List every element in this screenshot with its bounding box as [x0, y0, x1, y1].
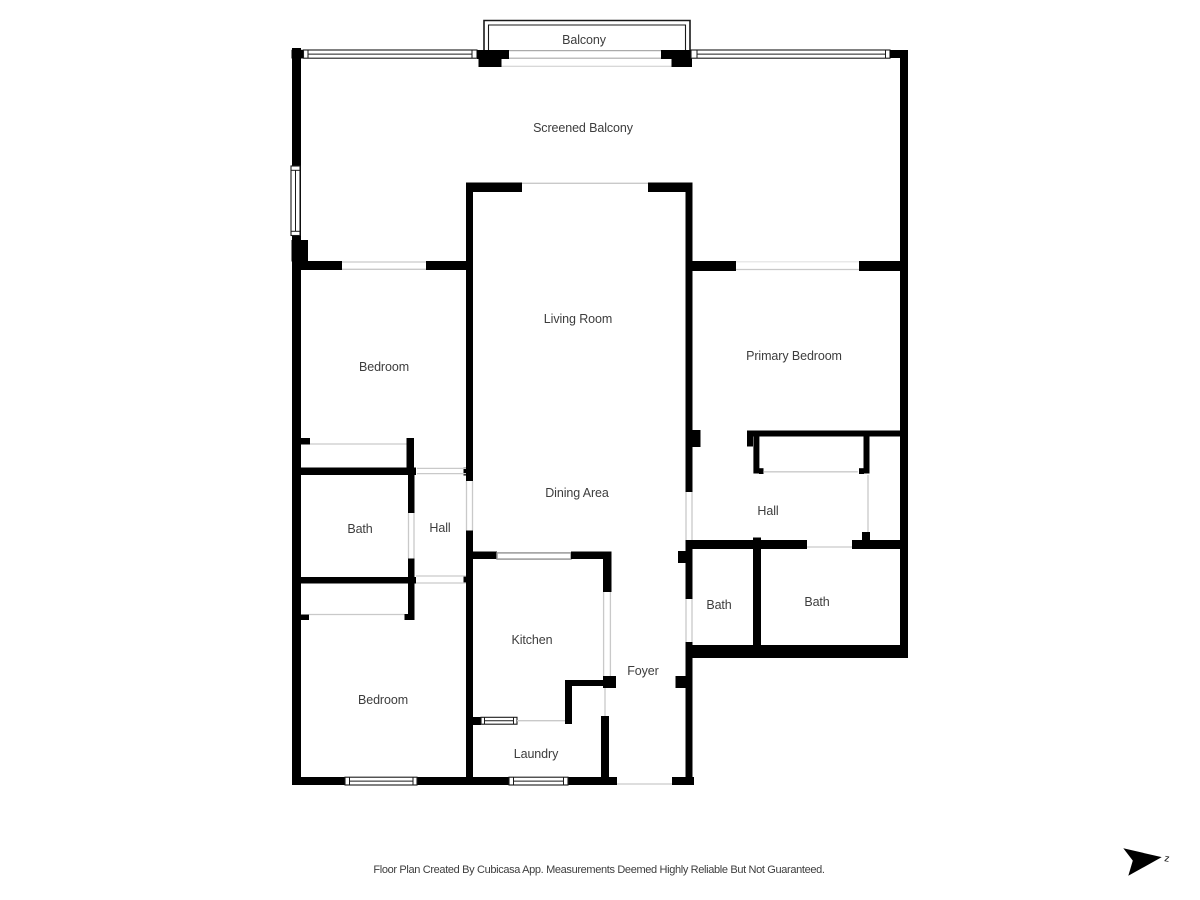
- svg-text:Laundry: Laundry: [514, 747, 559, 761]
- svg-text:Foyer: Foyer: [627, 664, 658, 678]
- svg-text:Floor Plan Created By Cubicasa: Floor Plan Created By Cubicasa App. Meas…: [373, 864, 824, 876]
- svg-text:z: z: [1163, 853, 1170, 865]
- svg-text:Hall: Hall: [757, 504, 778, 518]
- svg-text:Dining Area: Dining Area: [545, 486, 609, 500]
- svg-text:Primary Bedroom: Primary Bedroom: [746, 349, 842, 363]
- svg-text:Living Room: Living Room: [544, 312, 612, 326]
- svg-text:Bath: Bath: [706, 598, 731, 612]
- svg-text:Balcony: Balcony: [562, 33, 607, 47]
- svg-text:Bedroom: Bedroom: [359, 360, 409, 374]
- svg-text:Hall: Hall: [429, 521, 450, 535]
- svg-text:Bath: Bath: [804, 595, 829, 609]
- svg-text:Bedroom: Bedroom: [358, 693, 408, 707]
- svg-text:Screened Balcony: Screened Balcony: [533, 121, 634, 135]
- svg-text:Kitchen: Kitchen: [512, 633, 553, 647]
- svg-text:Bath: Bath: [347, 522, 372, 536]
